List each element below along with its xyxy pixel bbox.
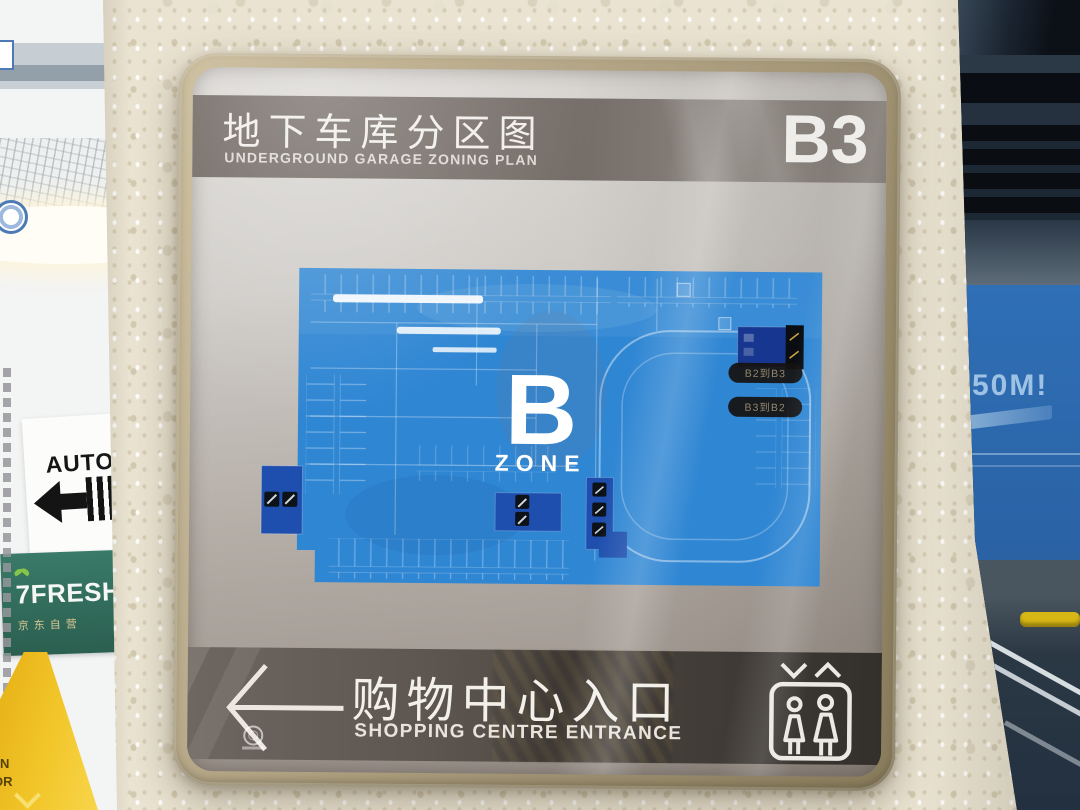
- photo-scene: AUTO 自 7FRESH 京东自营 N OR 50M: [0, 0, 1080, 810]
- floor-lane-line: [1004, 720, 1080, 783]
- left-arrow-icon: [215, 661, 346, 752]
- auto-sign-label: AUTO: [45, 448, 115, 479]
- left-arrow-solid-icon: [33, 477, 90, 526]
- sign-board: 地下车库分区图 UNDERGROUND GARAGE ZONING PLAN B…: [173, 53, 901, 791]
- caution-cone-sign: N OR: [0, 652, 98, 810]
- elevator-icon: [765, 660, 856, 763]
- sign-footer: 购物中心入口 SHOPPING CENTRE ENTRANCE: [187, 647, 882, 765]
- zone-map-svg: B2到B3 B3到B2 B ZONE: [234, 263, 837, 598]
- ceiling-stripe: [0, 43, 118, 65]
- header-title-en: UNDERGROUND GARAGE ZONING PLAN: [224, 149, 538, 168]
- escalator-block-left: [261, 466, 303, 534]
- chevron-mark-icon: [14, 782, 41, 809]
- mall-interior: AUTO 自 7FRESH 京东自营 N OR: [0, 0, 118, 810]
- fresh-subtitle-text: 京东自营: [17, 615, 82, 633]
- floor-level-badge: B3: [781, 100, 869, 179]
- sign-header: 地下车库分区图 UNDERGROUND GARAGE ZONING PLAN B…: [192, 95, 887, 183]
- garage-ceiling-slats: [950, 125, 1080, 220]
- ramp-label-text: B2到B3: [745, 368, 786, 380]
- ramp-block-topright: [737, 325, 803, 370]
- yellow-pipe: [1020, 612, 1080, 627]
- leaf-icon: [17, 569, 27, 579]
- emblem-icon: [243, 725, 263, 745]
- distance-text: 50M!: [972, 369, 1048, 403]
- garage-ceiling-beam: [950, 55, 1080, 73]
- small-wall-sign: [0, 40, 14, 70]
- caution-text-fragment: N: [0, 756, 9, 771]
- garage-ceiling-beam: [950, 103, 1080, 125]
- garage-wall-haze: [950, 220, 1080, 285]
- ramp-label-pill: B2到B3: [728, 363, 802, 384]
- caution-text-fragment: OR: [0, 774, 13, 789]
- escalator-block-center: [495, 493, 561, 532]
- zone-word: ZONE: [495, 450, 587, 477]
- garage-ceiling-beam: [950, 73, 1080, 103]
- ramp-label-text: B3到B2: [744, 402, 785, 414]
- footer-direction-en: SHOPPING CENTRE ENTRANCE: [354, 720, 682, 745]
- ceiling-stripe: [0, 81, 118, 89]
- garage-zone-map: B2到B3 B3到B2 B ZONE: [234, 263, 837, 598]
- header-title-zh: 地下车库分区图: [222, 100, 544, 158]
- ceiling-stripe: [0, 65, 118, 81]
- ramp-label-pill: B3到B2: [728, 397, 802, 418]
- sign-glass-panel: 地下车库分区图 UNDERGROUND GARAGE ZONING PLAN B…: [187, 67, 887, 777]
- fresh-brand-text: 7FRESH: [15, 576, 122, 611]
- fresh-store-sign: 7FRESH 京东自营: [0, 550, 123, 656]
